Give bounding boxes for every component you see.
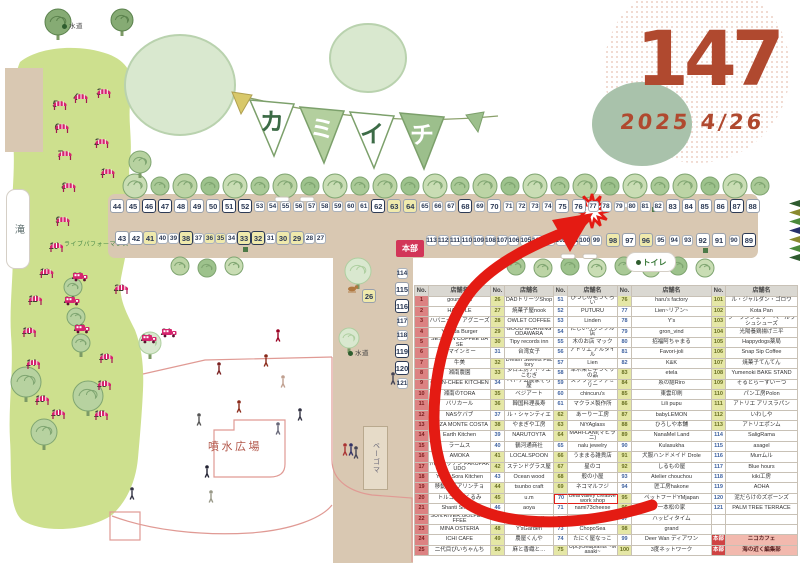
table-cell-name: ニコカフェ — [726, 535, 798, 545]
table-cell-name: aoya — [505, 504, 554, 514]
map-stall-30: 30 — [276, 231, 290, 245]
table-cell-name: OWLET COFFEE — [505, 317, 554, 327]
map-stall-37: 37 — [193, 233, 204, 244]
table-cell-name: u.m — [505, 494, 554, 504]
map-stall-39: 39 — [168, 233, 179, 244]
table-cell-name: 匠工房hakone — [632, 483, 712, 493]
map-stall-50: 50 — [206, 199, 220, 213]
table-cell-name: いわしや — [726, 411, 798, 421]
map-stall-86: 86 — [714, 199, 728, 213]
map-stall-59: 59 — [332, 201, 343, 212]
field-stall-25: 25 — [74, 323, 84, 333]
table-cell-no: 78 — [618, 317, 632, 327]
table-cell-no: 33 — [491, 369, 505, 379]
table-cell-no: 5 — [415, 338, 429, 348]
field-stall-21: 21 — [161, 327, 171, 337]
table-cell-no: 84 — [618, 380, 632, 390]
table-cell-no: 55 — [554, 338, 568, 348]
table-cell-no: 87 — [618, 411, 632, 421]
field-stall-23: 23 — [72, 271, 82, 281]
table-cell-no: 102 — [712, 307, 726, 317]
map-stall-53: 53 — [254, 201, 265, 212]
table-cell-name: gron_vind — [632, 328, 712, 338]
table-cell-name: 川蔵キッチン PAKUPAKUDO — [429, 463, 491, 473]
table-cell-name: アトリエ アルタイル — [568, 348, 618, 358]
table-cell-name: NASケバブ — [429, 411, 491, 421]
table-cell-name: haru's factory — [632, 296, 712, 306]
map-stall-102: 102 — [556, 235, 567, 246]
table-cell-no: 40 — [491, 442, 505, 452]
table-cell-no: 59 — [554, 380, 568, 390]
table-cell-name: しるもの屋 — [632, 463, 712, 473]
field-stall-2: 2 — [94, 137, 99, 147]
map-stall-62: 62 — [371, 199, 385, 213]
table-cell-name: PUTURU — [568, 307, 618, 317]
map-stall-29: 29 — [290, 231, 304, 245]
table-cell-no: 91 — [618, 452, 632, 462]
table-header-name: 店舗名 — [632, 286, 712, 297]
table-cell-name: Murrムル — [726, 452, 798, 462]
stall-row-bottom-left: 4342414039383736353433323130292827 — [115, 231, 318, 245]
field-stall-16: 16 — [51, 408, 61, 418]
map-stall-87: 87 — [730, 199, 744, 213]
table-cell-no: 90 — [618, 442, 632, 452]
map-stall-56: 56 — [293, 201, 304, 212]
table-cell-no: 17 — [415, 463, 429, 473]
table-cell-no: 111 — [712, 400, 726, 410]
map-stall-38: 38 — [179, 231, 193, 245]
table-cell-no: 76 — [618, 296, 632, 306]
field-stall-10: 10 — [49, 241, 59, 251]
table-cell-name: PIZZA MONTE COSTA — [429, 421, 491, 431]
table-cell-no: 56 — [554, 348, 568, 358]
map-stall-84: 84 — [682, 199, 696, 213]
table-cell-name: Dream Sweets Factory — [505, 359, 554, 369]
table-cell-no: 116 — [712, 452, 726, 462]
table-cell-name: 3度ネットワーク — [632, 546, 712, 556]
event-number: 147 — [636, 14, 780, 103]
table-cell-no: 98 — [618, 525, 632, 535]
table-cell-name: ひつじの毛づくろい — [568, 296, 618, 306]
table-cell-no: 117 — [712, 463, 726, 473]
table-header-no: No. — [415, 286, 429, 297]
table-cell-name: スクラップファミリー — [568, 380, 618, 390]
table-cell-name: 犬服ハンドメイド Drole — [632, 452, 712, 462]
table-cell-no: 104 — [712, 328, 726, 338]
table-cell-no: 37 — [491, 411, 505, 421]
stall-row-bottom-right: 98979695949392919089 — [606, 233, 756, 247]
table-cell-no: 35 — [491, 390, 505, 400]
table-cell-name: Deer Wan ディアワン — [632, 535, 712, 545]
table-cell-name: 星のコ — [568, 463, 618, 473]
table-cell-name: 移動喫茶アリンチョ — [429, 483, 491, 493]
table-cell-name: ブーランジェリー ベールラシュシューズ — [726, 317, 798, 327]
table-cell-name: 般の小屋 — [568, 473, 618, 483]
table-cell-name: アトリエポンム — [726, 421, 798, 431]
table-cell-no: 74 — [554, 535, 568, 545]
map-stall-75: 75 — [555, 199, 569, 213]
map-stall-43: 43 — [115, 231, 129, 245]
map-stall-55: 55 — [280, 201, 291, 212]
table-cell-name: K&K — [632, 359, 712, 369]
table-header-no: No. — [712, 286, 726, 297]
table-cell-name: ル・シャンティエ — [505, 411, 554, 421]
map-stall-95: 95 — [655, 235, 666, 246]
table-cell-name: chincuru's — [568, 390, 618, 400]
table-cell-empty — [726, 525, 798, 535]
table-cell-no: 106 — [712, 348, 726, 358]
table-cell-no: 20 — [415, 494, 429, 504]
table-cell-no: 83 — [618, 369, 632, 379]
table-cell-no: 6 — [415, 348, 429, 358]
table-cell-name: Blue hours — [726, 463, 798, 473]
table-cell-name: ハッピィタイム — [632, 515, 712, 525]
table-cell-no: 60 — [554, 390, 568, 400]
map-stall-108: 108 — [485, 235, 496, 246]
table-cell-no: 19 — [415, 483, 429, 493]
table-cell-name: 台湾女子 — [505, 348, 554, 358]
table-cell-name: Lili pupu — [632, 400, 712, 410]
table-cell-no: 109 — [712, 380, 726, 390]
table-cell-no: 43 — [491, 473, 505, 483]
table-cell-name: 鶴河通商社 — [505, 442, 554, 452]
table-cell-name: Lien~リアン~ — [632, 307, 712, 317]
table-cell-name: 海の近く編集部 — [726, 546, 798, 556]
table-cell-no: 92 — [618, 463, 632, 473]
table-cell-name: 糸の結Riro — [632, 380, 712, 390]
map-stall-98: 98 — [606, 233, 620, 247]
table-cell-no: 16 — [415, 452, 429, 462]
map-stall-78: 78 — [601, 201, 612, 212]
table-cell-name: Tipy records inn — [505, 338, 554, 348]
table-cell-no: 100 — [618, 546, 632, 556]
field-stall-20: 20 — [141, 333, 151, 343]
map-stall-34: 34 — [226, 233, 237, 244]
table-cell-no: 75 — [554, 546, 568, 556]
table-cell-no: 61 — [554, 400, 568, 410]
table-cell-no: 44 — [491, 483, 505, 493]
table-cell-empty — [726, 515, 798, 525]
table-cell-name: ル・ジャルダン・ゴロワ — [726, 296, 798, 306]
map-stall-36: 36 — [204, 233, 215, 244]
table-cell-no: 45 — [491, 494, 505, 504]
water-dot-icon — [62, 24, 67, 29]
table-header-no: No. — [554, 286, 568, 297]
field-stall-5: 5 — [52, 99, 57, 109]
map-stall-107: 107 — [497, 235, 508, 246]
map-stall-28: 28 — [304, 233, 315, 244]
field-stall-11: 11 — [39, 267, 48, 277]
map-stall-48: 48 — [174, 199, 188, 213]
map-stall-100: 100 — [579, 235, 590, 246]
field-stall-15: 15 — [35, 394, 45, 404]
map-stall-44: 44 — [110, 199, 124, 213]
map-stall-101: 101 — [567, 235, 578, 246]
map-stall-65: 65 — [419, 201, 430, 212]
table-cell-name: Happydogs薬局 — [726, 338, 798, 348]
table-cell-no: 115 — [712, 442, 726, 452]
map-stall-32: 32 — [251, 231, 265, 245]
table-cell-no: 114 — [712, 431, 726, 441]
table-cell-name: アトリエ アリスラパン — [726, 400, 798, 410]
table-cell-name: tsunbo craft — [505, 483, 554, 493]
stall-col-left: 114115116117118119120121 — [393, 268, 411, 389]
table-cell-no: 15 — [415, 442, 429, 452]
map-stall-47: 47 — [158, 199, 172, 213]
table-cell-no: 94 — [618, 483, 632, 493]
water-label-top: 水道 — [62, 20, 83, 30]
table-header-name: 店舗名 — [726, 286, 798, 297]
table-cell-no: 46 — [491, 504, 505, 514]
table-cell-name: Favori-joli — [632, 348, 712, 358]
map-stall-85: 85 — [698, 199, 712, 213]
table-cell-no: 本部 — [712, 535, 726, 545]
table-cell-no: 28 — [491, 317, 505, 327]
vendor-table: No.店舗名No.店舗名No.店舗名No.店舗名No.店舗名1gourmand2… — [414, 285, 798, 556]
table-cell-no: 29 — [491, 328, 505, 338]
table-cell-name: そるとらーすいーつ — [726, 380, 798, 390]
table-cell-name: Kulasukha — [632, 442, 712, 452]
map-stall-120: 120 — [395, 361, 409, 375]
map-stall-80: 80 — [627, 201, 638, 212]
table-cell-name: やまぎや工房 — [505, 421, 554, 431]
table-cell-name: ハバニーズ・アグニーズ — [429, 317, 491, 327]
field-stall-26: 26 — [362, 289, 376, 303]
map-stall-58: 58 — [319, 201, 330, 212]
field-stall-22: 22 — [114, 283, 124, 293]
table-cell-name: masum candle — [505, 515, 554, 525]
water-label-mid: 水道 — [348, 347, 369, 357]
map-stall-71: 71 — [503, 201, 514, 212]
toilet-dot-icon — [636, 260, 641, 265]
map-stall-73: 73 — [529, 201, 540, 212]
table-cell-no: 7 — [415, 359, 429, 369]
table-cell-no: 121 — [712, 504, 726, 514]
table-cell-name: BearValley creative work shop — [568, 494, 618, 504]
map-stall-54: 54 — [267, 201, 278, 212]
map-stall-63: 63 — [387, 199, 401, 213]
table-cell-name: スマインミー — [429, 348, 491, 358]
table-cell-no: 80 — [618, 338, 632, 348]
table-cell-no: 65 — [554, 442, 568, 452]
map-stall-110: 110 — [461, 235, 472, 246]
field-stall-18: 18 — [97, 379, 107, 389]
table-cell-no: 8 — [415, 369, 429, 379]
map-stall-91: 91 — [712, 233, 726, 247]
field-stall-8: 8 — [61, 181, 66, 191]
table-cell-name: nalu jewelry — [568, 442, 618, 452]
field-stall-19: 19 — [99, 352, 109, 362]
table-cell-no: 10 — [415, 390, 429, 400]
table-cell-no: 3 — [415, 317, 429, 327]
table-cell-name: SaligRama — [726, 431, 798, 441]
table-cell-name: Linden — [568, 317, 618, 327]
map-stall-27: 27 — [315, 233, 326, 244]
map-stall-90: 90 — [729, 235, 740, 246]
map-stall-119: 119 — [395, 344, 409, 358]
map-stall-69: 69 — [474, 201, 485, 212]
map-stall-115: 115 — [395, 282, 409, 296]
table-cell-name: 牛美 — [429, 359, 491, 369]
table-cell-name: MAHI-LANI(マヒラニ) — [568, 431, 618, 441]
table-cell-name: Ocean wood — [505, 473, 554, 483]
table-cell-name: Snap Sip Coffee — [726, 348, 798, 358]
table-cell-name: gourmand — [429, 296, 491, 306]
event-map-flyer: カミイチ 147 2025 4/26 水道 水道 滝 ライブパフォーマンス 本部… — [0, 0, 800, 563]
field-stall-6: 6 — [54, 122, 59, 132]
map-stall-83: 83 — [666, 199, 680, 213]
table-cell-name: 農屋くんや — [505, 535, 554, 545]
fountain-plaza-label: 噴水広場 — [208, 438, 282, 454]
map-stall-76: 76 — [572, 199, 586, 213]
table-cell-no: 23 — [415, 525, 429, 535]
table-cell-name: AMOKA — [429, 452, 491, 462]
map-stall-113: 113 — [426, 235, 437, 246]
table-cell-no: 118 — [712, 473, 726, 483]
table-cell-no: 95 — [618, 494, 632, 504]
table-cell-no: 13 — [415, 421, 429, 431]
table-cell-name: 麻と香織と… — [505, 546, 554, 556]
table-cell-name: ICHI CAFE — [429, 535, 491, 545]
map-stall-70: 70 — [487, 199, 501, 213]
table-cell-no: 79 — [618, 328, 632, 338]
table-cell-no: 36 — [491, 400, 505, 410]
table-cell-name: SUN.RIVER.GOLF&COFFEE — [429, 515, 491, 525]
table-cell-name: HAIROLE — [429, 307, 491, 317]
map-stall-67: 67 — [445, 201, 456, 212]
table-cell-name: kiki工房 — [726, 473, 798, 483]
table-cell-no: 71 — [554, 504, 568, 514]
table-cell-no: 11 — [415, 400, 429, 410]
map-stall-33: 33 — [237, 231, 251, 245]
map-stall-109: 109 — [473, 235, 484, 246]
table-cell-no: 2 — [415, 307, 429, 317]
table-cell-no: 39 — [491, 431, 505, 441]
table-cell-name: babyLEMON — [632, 411, 712, 421]
table-cell-no: 64 — [554, 431, 568, 441]
map-stall-52: 52 — [238, 199, 252, 213]
table-header-name: 店舗名 — [505, 286, 554, 297]
map-stall-61: 61 — [358, 201, 369, 212]
table-cell-no: 18 — [415, 473, 429, 483]
table-cell-no: 41 — [491, 452, 505, 462]
water-dot-icon — [348, 351, 353, 356]
table-cell-no: 14 — [415, 431, 429, 441]
map-stall-72: 72 — [516, 201, 527, 212]
svg-text:チ: チ — [410, 122, 434, 149]
table-cell-no: 34 — [491, 380, 505, 390]
table-cell-name: バリカール — [429, 400, 491, 410]
table-cell-no: 9 — [415, 380, 429, 390]
field-stall-12: 12 — [28, 294, 38, 304]
table-cell-empty — [712, 525, 726, 535]
table-cell-name: DADトリーツShop — [505, 296, 554, 306]
map-stall-89: 89 — [742, 233, 756, 247]
table-cell-name: NARUTOYTA — [505, 431, 554, 441]
table-cell-name: ステンドグラス屋 — [505, 463, 554, 473]
table-cell-name: パン工房Polon — [726, 390, 798, 400]
table-cell-name: NanaMel Land — [632, 431, 712, 441]
table-cell-no: 85 — [618, 390, 632, 400]
table-cell-name: grand — [632, 525, 712, 535]
table-cell-name: Upcycle&plants ~Masaki~ — [568, 546, 618, 556]
table-cell-name: Earth Kitchen — [429, 431, 491, 441]
table-cell-no: 93 — [618, 473, 632, 483]
map-stall-118: 118 — [397, 330, 408, 341]
table-cell-no: 96 — [618, 504, 632, 514]
table-cell-no: 50 — [491, 546, 505, 556]
table-cell-no: 49 — [491, 535, 505, 545]
table-cell-name: たにく屋なっこ — [568, 535, 618, 545]
map-stall-79: 79 — [614, 201, 625, 212]
table-cell-name: SESSION COFFEE BASE — [429, 338, 491, 348]
field-stall-9: 9 — [55, 215, 60, 225]
table-cell-no: 52 — [554, 307, 568, 317]
map-stall-97: 97 — [622, 233, 636, 247]
map-stall-94: 94 — [669, 235, 680, 246]
table-cell-name: うままる雑貨店 — [568, 452, 618, 462]
table-cell-no: 51 — [554, 296, 568, 306]
table-cell-name: ラームス — [429, 442, 491, 452]
table-cell-no: 110 — [712, 390, 726, 400]
table-cell-name: PALM TREE TERRACE — [726, 504, 798, 514]
map-stall-103: 103 — [544, 235, 555, 246]
table-cell-name: AOHA — [726, 483, 798, 493]
table-cell-name: Yumenoki BAKE STAND — [726, 369, 798, 379]
event-date: 2025 4/26 — [619, 110, 766, 134]
table-cell-no: 112 — [712, 411, 726, 421]
table-cell-name: 東雲印刷 — [632, 390, 712, 400]
field-stall-13: 13 — [22, 326, 32, 336]
table-cell-no: 66 — [554, 452, 568, 462]
table-cell-no: 本部 — [712, 546, 726, 556]
table-cell-name: ペットフードYMjapan — [632, 494, 712, 504]
table-cell-no: 30 — [491, 338, 505, 348]
table-cell-name: etela — [632, 369, 712, 379]
table-cell-no: 67 — [554, 463, 568, 473]
table-cell-name: LOCALSPOON — [505, 452, 554, 462]
stall-row-top: 4445464748495051525354555657585960616263… — [110, 199, 760, 213]
table-cell-name: 泥だらけのズボーンズ — [726, 494, 798, 504]
table-cell-name: nami73cheese — [568, 504, 618, 514]
table-cell-no: 69 — [554, 483, 568, 493]
table-cell-no: 99 — [618, 535, 632, 545]
map-stall-64: 64 — [403, 199, 417, 213]
table-cell-name: 一本松の家 — [632, 504, 712, 514]
table-cell-name: ベジアート — [505, 390, 554, 400]
map-stall-111: 111 — [450, 235, 461, 246]
table-header-no: No. — [618, 286, 632, 297]
table-cell-name: 草木染と手づくりの品 — [568, 369, 618, 379]
table-cell-no: 120 — [712, 494, 726, 504]
table-cell-no: 48 — [491, 525, 505, 535]
map-stall-96: 96 — [639, 233, 653, 247]
table-cell-no: 4 — [415, 328, 429, 338]
hq-box: 本部 — [396, 240, 424, 257]
map-stall-51: 51 — [222, 199, 236, 213]
map-stall-66: 66 — [432, 201, 443, 212]
map-stall-82: 82 — [653, 201, 664, 212]
map-stall-57: 57 — [306, 201, 317, 212]
table-cell-name: Lien — [568, 359, 618, 369]
table-cell-name: 焼菓子屋nook — [505, 307, 554, 317]
table-cell-no: 42 — [491, 463, 505, 473]
table-cell-no: 32 — [491, 359, 505, 369]
table-cell-name: 湘南農園 — [429, 369, 491, 379]
map-stall-40: 40 — [157, 233, 168, 244]
table-cell-name: 焼菓子てんてん — [726, 359, 798, 369]
table-cell-name: asagel — [726, 442, 798, 452]
